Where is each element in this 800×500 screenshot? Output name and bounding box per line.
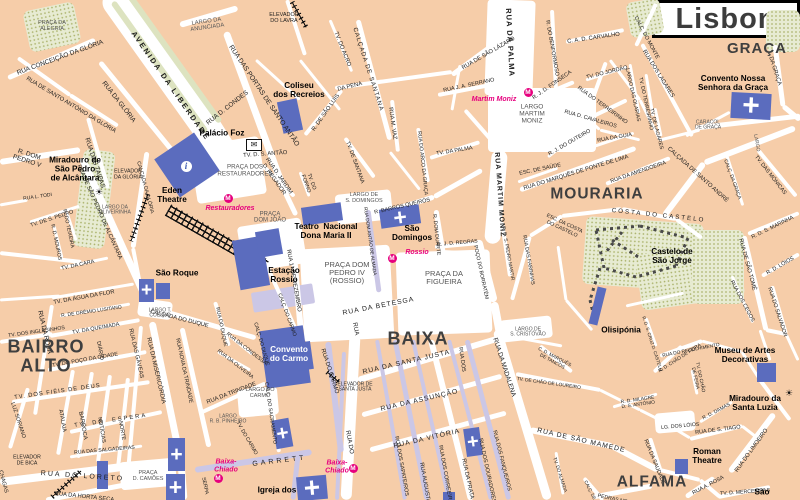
- cross-icon: +: [304, 487, 320, 488]
- district-label: GRAÇA: [727, 41, 787, 57]
- street-label: LARGO MARTIM MONIZ: [519, 103, 545, 124]
- street-label: RUA DA GUIA: [597, 133, 633, 145]
- street: [0, 251, 82, 264]
- landmark-label: Convento do Carmo: [270, 346, 308, 364]
- street-label: RUA DA AMENDOEIRA: [610, 161, 667, 186]
- street: [785, 333, 800, 360]
- street-label: PRAÇA DA ALEGRIA: [38, 21, 66, 33]
- cross-icon: +: [276, 432, 288, 434]
- street-label: LARGO DA OLIVEIRINHA: [99, 206, 131, 217]
- street-label: ELEVADOR DE SANTA JUSTA: [337, 383, 372, 394]
- landmark-label: Miradouro da Santa Luzia: [729, 395, 781, 413]
- street-label: LARGO DO CARMO: [245, 388, 274, 400]
- street-label: ELEVADOR DA GLÓRIA: [114, 169, 142, 180]
- street-label: TV. DO ACRO: [332, 31, 352, 68]
- landmark-label: Museu de Artes Decorativas: [715, 347, 776, 365]
- street: [557, 246, 568, 300]
- street: [662, 161, 707, 218]
- street-label: R. D. S. CRUZ D. CASTELO: [640, 316, 662, 372]
- street: [389, 151, 421, 191]
- street-label: LARGO T. COELHO: [149, 309, 172, 320]
- landmark-label: Palácio Foz: [199, 130, 244, 139]
- street-label: CARACOL DE GRAÇA: [695, 121, 721, 132]
- street-label: RUA DAS SALGADEIRAS: [74, 446, 135, 457]
- lisbon-map: Lisbon ++++++++PRAÇA DA ALEGRIARUA CONCE…: [0, 0, 800, 500]
- landmark-building: [675, 459, 688, 474]
- street-label: SERPA: [200, 477, 209, 495]
- landmark-building: [255, 228, 283, 258]
- landmark-label: Castelo de São Jorge: [651, 248, 692, 266]
- street-label: ELEVADOR DO LAVRA: [269, 13, 299, 25]
- metro-icon: M: [388, 254, 397, 263]
- street-label: PRAÇA D. CAMÕES: [133, 471, 164, 483]
- landmark-label: Igreja dos: [258, 487, 297, 496]
- landmark-label: Teatro Nacional Dona Maria II: [294, 223, 357, 241]
- landmark-label: São Domingos: [392, 225, 432, 243]
- street-label: RUA DOS FANQUEIROS: [490, 430, 511, 492]
- landmark-label: São: [754, 489, 769, 498]
- street-label: TV. DO CHÃO DE FEIRA: [689, 362, 706, 394]
- cross-icon: +: [393, 216, 406, 218]
- metro-station-label: Restauradores: [205, 205, 254, 213]
- street-label: LARGO: [752, 134, 760, 152]
- street-label: R. DOM PEDRO V: [12, 147, 44, 169]
- landmark-label: Eden Theatre: [157, 187, 187, 205]
- metro-icon: M: [224, 194, 233, 203]
- street-label: RUA DOS CORREEIROS: [436, 445, 453, 500]
- district-label: BAIRRO ALTO: [8, 338, 85, 377]
- street-label: PRAÇA DA FIGUEIRA: [425, 270, 463, 286]
- street-label: TV. DO CARMO: [234, 421, 258, 456]
- church-building: +: [139, 279, 154, 302]
- street-label: R. DO BENFORMOSO: [543, 20, 559, 77]
- metro-icon: M: [349, 464, 358, 473]
- metro-station-label: Baixa- Chiado: [214, 458, 238, 473]
- district-label: MOURARIA: [550, 187, 643, 204]
- landmark-label: Roman Theatre: [692, 448, 722, 466]
- metro-station-label: Rossio: [405, 249, 428, 257]
- map-title: Lisbon: [675, 3, 776, 36]
- street-label: LARGO DE S. CRISTÓVÃO: [510, 328, 546, 339]
- street-label: CALÇADA DE SANTANA: [351, 27, 384, 112]
- landmark-label: Coliseu dos Recreios: [273, 82, 324, 100]
- district-label: BAIXA: [387, 329, 448, 348]
- street-label: R. D. LÓIOS: [766, 257, 796, 278]
- street-label: C. D. MARQUÊS DE TANCOS: [534, 347, 571, 373]
- cross-icon: +: [742, 106, 760, 107]
- viewpoint-icon: ☀: [785, 388, 793, 399]
- street-label: ELEVADOR DE BICA: [13, 455, 41, 466]
- info-icon: i: [181, 161, 192, 172]
- street-label: RUA L. TODI: [23, 193, 52, 202]
- street-label: TV. DO FORNO: [300, 172, 317, 193]
- street-label: PRAÇA DOM PEDRO IV (ROSSIO): [324, 261, 369, 285]
- church-building: +: [730, 92, 771, 120]
- street-label: DA PENA: [337, 81, 363, 93]
- street-label: TV. DA PALMA: [436, 146, 473, 158]
- street-label: TV. DA QUEIMADA: [72, 323, 120, 337]
- church-building: +: [296, 475, 328, 500]
- street-label: RUA DE SÃO MAMEDE: [536, 427, 626, 454]
- landmark-label: Convento Nossa Senhora da Graça: [698, 75, 768, 93]
- landmark-label: São Roque: [156, 270, 199, 279]
- street-label: LARGO DE S. DOMINGOS: [345, 193, 382, 205]
- landmark-label: Olisipónia: [601, 327, 641, 336]
- street: [433, 168, 483, 199]
- street-label: PEDRAS NEGRAS: [597, 494, 642, 500]
- metro-station-label: Martim Moniz: [472, 96, 517, 104]
- metro-icon: M: [524, 88, 533, 97]
- metro-station-label: Baixa- Chiado: [325, 459, 349, 474]
- church-building: +: [166, 474, 185, 500]
- landmark-building: [757, 363, 776, 382]
- post-office-icon: ✉: [246, 139, 262, 151]
- street-label: RUA DE S. TIAGO: [695, 425, 741, 436]
- street-label: R. D. DAMAS: [702, 403, 732, 422]
- landmark-label: Estação Rossio: [268, 267, 299, 285]
- metro-icon: M: [214, 474, 223, 483]
- landmark-label: Miradouro de São Pedro de Alcântara: [49, 157, 101, 184]
- street-label: PRAÇA DOM JOÃO: [254, 212, 286, 225]
- viewpoint-icon: ☀: [95, 187, 103, 198]
- street-label: R. DE GRÉMIO LUSITANO: [61, 306, 122, 320]
- church-building: +: [168, 438, 185, 471]
- landmark-building: [156, 283, 170, 299]
- street-label: RUA: [350, 322, 359, 336]
- street-label: R. D. S. PEDRO MARTIR: [500, 226, 515, 281]
- district-label: ALFAMA: [617, 475, 688, 492]
